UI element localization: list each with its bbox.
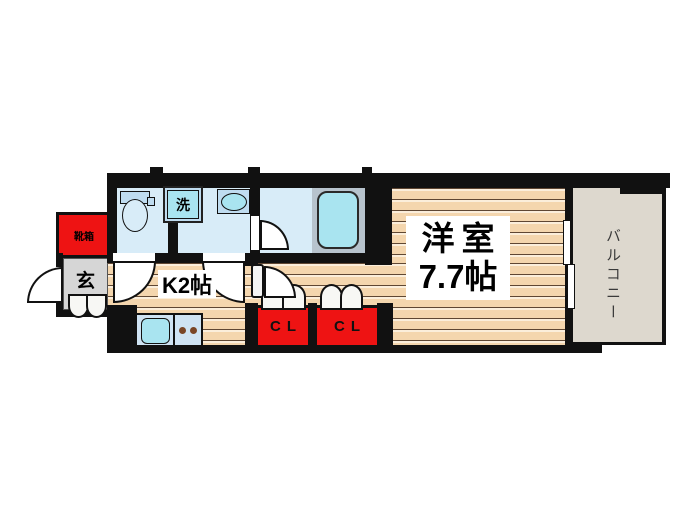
balcony-window-sash-1 [563, 220, 571, 265]
stove-burner-2 [190, 327, 197, 334]
washer-pan: 洗 [163, 186, 203, 223]
wall-block-left-of-counter [107, 305, 137, 353]
toilet-flush-button [147, 197, 155, 206]
entrance-bifold-right [86, 294, 107, 318]
western-room-label-box: 洋室 7.7帖 [406, 216, 510, 300]
washer-label: 洗 [176, 195, 190, 215]
closet-2-label: CL [328, 318, 366, 335]
entrance-label: 玄 [76, 266, 95, 293]
closet-2: CL [314, 305, 380, 348]
wall-toilet-left [107, 188, 117, 263]
closet-2-bifold-right [340, 284, 363, 310]
wall-entrance-left-upper [56, 253, 63, 267]
kitchen-label: K2帖 [162, 268, 212, 300]
balcony-right-rail [662, 188, 666, 345]
bathtub [317, 191, 359, 249]
vanity-unit [217, 189, 250, 214]
stove-burner-1 [179, 327, 186, 334]
floorplan-canvas: バルコニー 玄 靴箱 CL CL [0, 0, 700, 525]
entry-door-arc [27, 267, 63, 303]
western-room-label-line2: 7.7帖 [419, 258, 498, 296]
wall-top-nub-2 [248, 167, 260, 173]
wall-top-nub-3 [362, 167, 372, 173]
shoe-box: 靴箱 [56, 212, 112, 258]
toilet-bowl [122, 199, 148, 232]
wall-top-nub-1 [150, 167, 163, 173]
wall-bath-right [365, 188, 392, 265]
closet-1: CL [255, 305, 311, 348]
balcony-notch [620, 188, 666, 194]
counter-divider [173, 315, 175, 345]
bath-door-opening [251, 216, 259, 250]
kitchen-counter [135, 313, 203, 347]
washer-inner: 洗 [167, 190, 199, 219]
kitchen-sink [141, 318, 170, 344]
balcony-label: バルコニー [602, 228, 623, 348]
western-room-label-line1: 洋室 [415, 220, 502, 258]
kitchen-label-box: K2帖 [158, 270, 216, 298]
vanity-basin [221, 193, 247, 211]
balcony-window-sash-2 [567, 264, 575, 309]
room-door-leaf [251, 264, 264, 298]
closet-1-label: CL [264, 318, 302, 335]
shoe-box-label: 靴箱 [74, 228, 94, 243]
